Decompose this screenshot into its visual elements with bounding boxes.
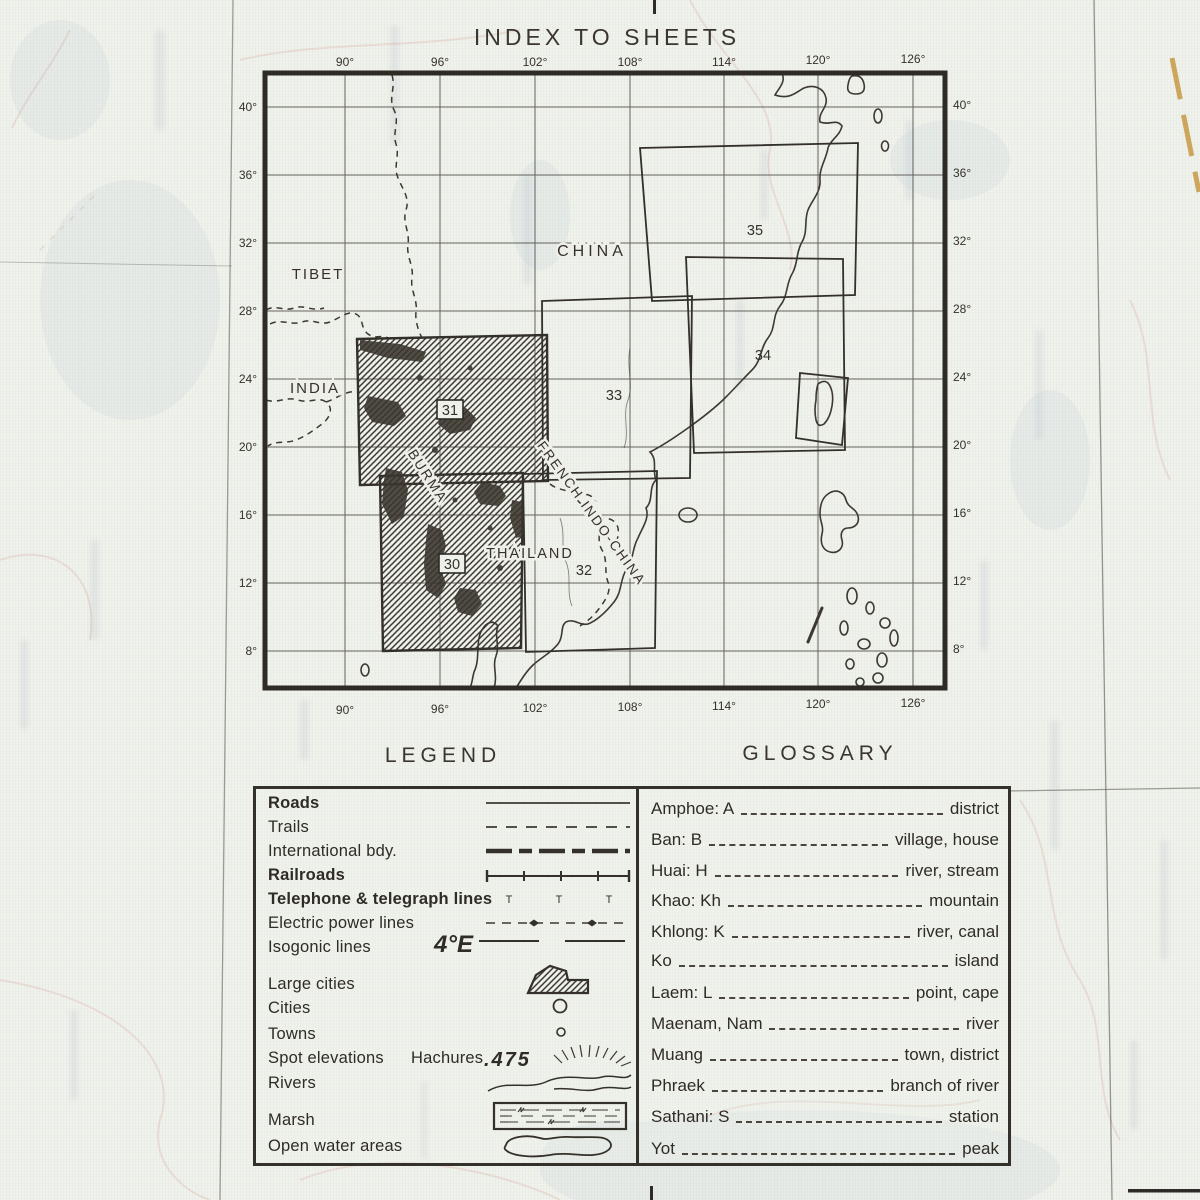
svg-text:20°: 20° bbox=[239, 440, 257, 454]
legend-glossary-divider bbox=[636, 789, 639, 1163]
leader-dashes bbox=[728, 904, 922, 907]
svg-text:16°: 16° bbox=[953, 506, 971, 520]
sheet-31-number: 31 bbox=[442, 403, 458, 419]
longitude-labels-top: 90°96° 102°108° 114°120° 126° bbox=[336, 52, 926, 69]
legend-label-international-bdy: International bdy. bbox=[268, 841, 397, 861]
sheet-34-number: 34 bbox=[755, 348, 771, 364]
svg-text:96°: 96° bbox=[431, 702, 449, 716]
trails-symbol bbox=[484, 821, 632, 833]
railroads-symbol bbox=[484, 868, 632, 884]
svg-text:32°: 32° bbox=[953, 234, 971, 248]
legend-label-roads: Roads bbox=[268, 793, 319, 813]
open-water-symbol bbox=[492, 1129, 628, 1161]
svg-text:20°: 20° bbox=[953, 438, 971, 452]
glossary-heading: GLOSSARY bbox=[742, 742, 897, 766]
svg-text:108°: 108° bbox=[618, 700, 643, 714]
leader-dashes bbox=[736, 1120, 941, 1123]
svg-text:32°: 32° bbox=[239, 236, 257, 250]
glossary-row-laem: Laem: Lpoint, cape bbox=[651, 983, 999, 1003]
legend-heading: LEGEND bbox=[385, 744, 501, 768]
glossary-row-phraek: Phraekbranch of river bbox=[651, 1076, 999, 1096]
label-tibet: TIBET bbox=[292, 266, 345, 283]
svg-text:96°: 96° bbox=[431, 55, 449, 69]
svg-text:102°: 102° bbox=[523, 55, 548, 69]
map-sheet-page: INDEX TO SHEETS 90°96° 102°108° 114°120°… bbox=[0, 0, 1200, 1200]
svg-text:102°: 102° bbox=[523, 701, 548, 715]
label-india: INDIA bbox=[290, 380, 340, 397]
glossary-row-muang: Muangtown, district bbox=[651, 1045, 999, 1065]
svg-text:126°: 126° bbox=[901, 52, 926, 66]
svg-text:40°: 40° bbox=[953, 98, 971, 112]
leader-dashes bbox=[719, 996, 908, 999]
svg-text:90°: 90° bbox=[336, 703, 354, 717]
glossary-row-huai: Huai: Hriver, stream bbox=[651, 861, 999, 881]
glossary-row-amphoe: Amphoe: Adistrict bbox=[651, 799, 999, 819]
svg-text:12°: 12° bbox=[953, 574, 971, 588]
leader-dashes bbox=[732, 935, 910, 938]
legend-label-hachures: Hachures bbox=[411, 1048, 483, 1068]
sheet-outlines bbox=[523, 143, 858, 652]
svg-text:T: T bbox=[506, 894, 513, 906]
legend-label-large-cities: Large cities bbox=[268, 974, 355, 994]
svg-text:40°: 40° bbox=[239, 100, 257, 114]
orange-edge-dash bbox=[1172, 58, 1199, 192]
international-boundary-symbol bbox=[484, 844, 632, 858]
svg-text:36°: 36° bbox=[953, 166, 971, 180]
svg-text:24°: 24° bbox=[239, 372, 257, 386]
isogonic-value: 4°E bbox=[434, 931, 473, 958]
svg-text:28°: 28° bbox=[953, 302, 971, 316]
taiwan-inset-outline bbox=[796, 373, 848, 445]
glossary-row-khao: Khao: Khmountain bbox=[651, 891, 999, 911]
leader-dashes bbox=[712, 1089, 883, 1092]
sheet-35-number: 35 bbox=[747, 223, 763, 239]
isogonic-symbol: 4°E bbox=[434, 931, 627, 959]
legend-label-railroads: Railroads bbox=[268, 865, 345, 885]
svg-text:8°: 8° bbox=[953, 642, 965, 656]
index-map: 90°96° 102°108° 114°120° 126° 90°96° 102… bbox=[230, 48, 975, 724]
sheet-33-number: 33 bbox=[606, 388, 622, 404]
svg-text:T: T bbox=[556, 894, 563, 906]
isogonic-lines bbox=[477, 936, 627, 946]
legend-label-spot-elevations: Spot elevations bbox=[268, 1048, 384, 1068]
svg-text:28°: 28° bbox=[239, 304, 257, 318]
legend-label-isogonic: Isogonic lines bbox=[268, 937, 371, 957]
svg-text:120°: 120° bbox=[806, 53, 831, 67]
svg-text:T: T bbox=[606, 894, 613, 906]
svg-text:120°: 120° bbox=[806, 697, 831, 711]
svg-text:114°: 114° bbox=[712, 55, 736, 69]
latitude-labels-left: 40°36° 32°28° 24°20° 16°12° 8° bbox=[239, 100, 257, 658]
glossary-row-sathani: Sathani: Sstation bbox=[651, 1107, 999, 1127]
label-china: CHINA bbox=[557, 243, 627, 260]
marsh-symbol bbox=[492, 1101, 628, 1131]
leader-dashes bbox=[679, 964, 948, 967]
leader-dashes bbox=[682, 1152, 955, 1155]
sheet-30-number: 30 bbox=[444, 557, 460, 573]
svg-text:108°: 108° bbox=[618, 55, 643, 69]
svg-text:24°: 24° bbox=[953, 370, 971, 384]
sheet-35-outline bbox=[640, 143, 858, 301]
legend-label-telephone: Telephone & telegraph lines bbox=[268, 889, 492, 909]
leader-dashes bbox=[710, 1058, 898, 1061]
svg-text:36°: 36° bbox=[239, 168, 257, 182]
leader-dashes bbox=[709, 843, 888, 846]
svg-text:90°: 90° bbox=[336, 55, 354, 69]
page-title: INDEX TO SHEETS bbox=[474, 24, 740, 51]
large-cities-symbol bbox=[518, 961, 608, 997]
longitude-labels-bottom: 90°96° 102°108° 114°120° 126° bbox=[336, 696, 926, 717]
glossary-row-ban: Ban: Bvillage, house bbox=[651, 830, 999, 850]
sheet-32-number: 32 bbox=[576, 563, 592, 579]
rivers-symbol bbox=[484, 1065, 634, 1097]
leader-dashes bbox=[715, 874, 899, 877]
legend-glossary-box: Roads Trails International bdy. Railroad… bbox=[253, 786, 1011, 1166]
svg-text:114°: 114° bbox=[712, 699, 736, 713]
legend-label-trails: Trails bbox=[268, 817, 309, 837]
svg-text:8°: 8° bbox=[246, 644, 258, 658]
glossary-row-khlong: Khlong: Kriver, canal bbox=[651, 922, 999, 942]
leader-dashes bbox=[769, 1027, 958, 1030]
glossary-row-ko: Koisland bbox=[651, 951, 999, 971]
electric-power-symbol bbox=[484, 917, 632, 929]
svg-text:12°: 12° bbox=[239, 576, 257, 590]
cities-symbol bbox=[546, 995, 576, 1017]
legend-label-cities: Cities bbox=[268, 998, 310, 1018]
latitude-labels-right: 40°36° 32°28° 24°20° 16°12° 8° bbox=[953, 98, 971, 656]
glossary-row-maenam: Maenam, Namriver bbox=[651, 1014, 999, 1034]
legend-label-towns: Towns bbox=[268, 1024, 316, 1044]
leader-dashes bbox=[741, 812, 943, 815]
label-thailand: THAILAND bbox=[486, 546, 574, 562]
legend-label-open-water: Open water areas bbox=[268, 1136, 402, 1156]
legend-label-marsh: Marsh bbox=[268, 1110, 315, 1130]
svg-text:126°: 126° bbox=[901, 696, 926, 710]
svg-text:16°: 16° bbox=[239, 508, 257, 522]
legend-label-electric: Electric power lines bbox=[268, 913, 414, 933]
roads-symbol bbox=[484, 797, 632, 809]
telephone-telegraph-symbol: T T T bbox=[484, 891, 632, 907]
legend-label-rivers: Rivers bbox=[268, 1073, 316, 1093]
glossary-row-yot: Yotpeak bbox=[651, 1139, 999, 1159]
